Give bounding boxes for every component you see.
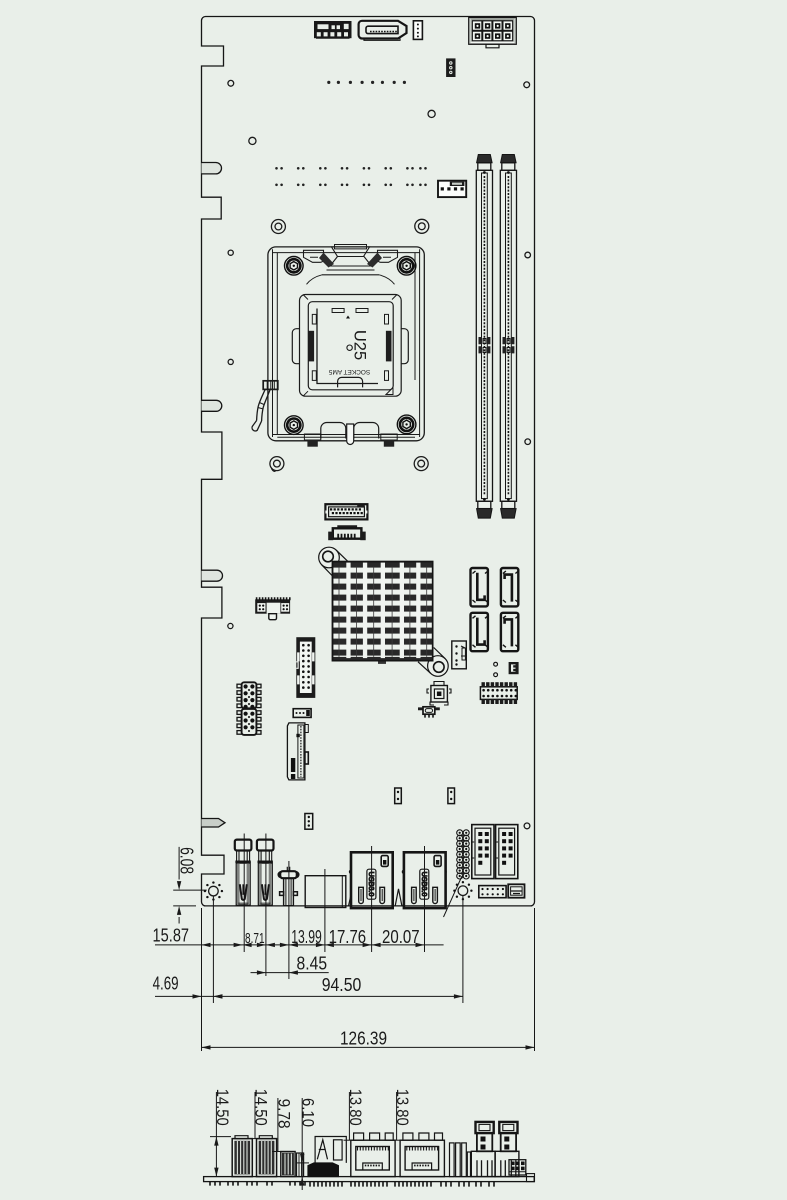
svg-text:8.45: 8.45 <box>297 954 328 974</box>
svg-text:13.80: 13.80 <box>346 1089 365 1126</box>
svg-text:14.50: 14.50 <box>252 1089 271 1126</box>
svg-text:15.87: 15.87 <box>153 926 190 946</box>
svg-text:U25: U25 <box>351 330 369 360</box>
svg-text:13.80: 13.80 <box>393 1089 412 1126</box>
svg-text:6.10: 6.10 <box>299 1098 318 1127</box>
svg-text:6.08: 6.08 <box>177 847 197 874</box>
svg-text:14.50: 14.50 <box>213 1089 232 1126</box>
svg-text:20.07: 20.07 <box>382 927 420 947</box>
svg-text:13.99: 13.99 <box>291 927 322 947</box>
svg-text:17.76: 17.76 <box>329 927 367 947</box>
svg-text:8.71: 8.71 <box>245 930 265 947</box>
svg-text:9.78: 9.78 <box>274 1099 293 1129</box>
svg-text:SOCKET AM5: SOCKET AM5 <box>328 368 370 375</box>
svg-text:126.39: 126.39 <box>340 1028 387 1048</box>
svg-text:94.50: 94.50 <box>322 975 362 995</box>
svg-text:4.69: 4.69 <box>153 973 179 993</box>
